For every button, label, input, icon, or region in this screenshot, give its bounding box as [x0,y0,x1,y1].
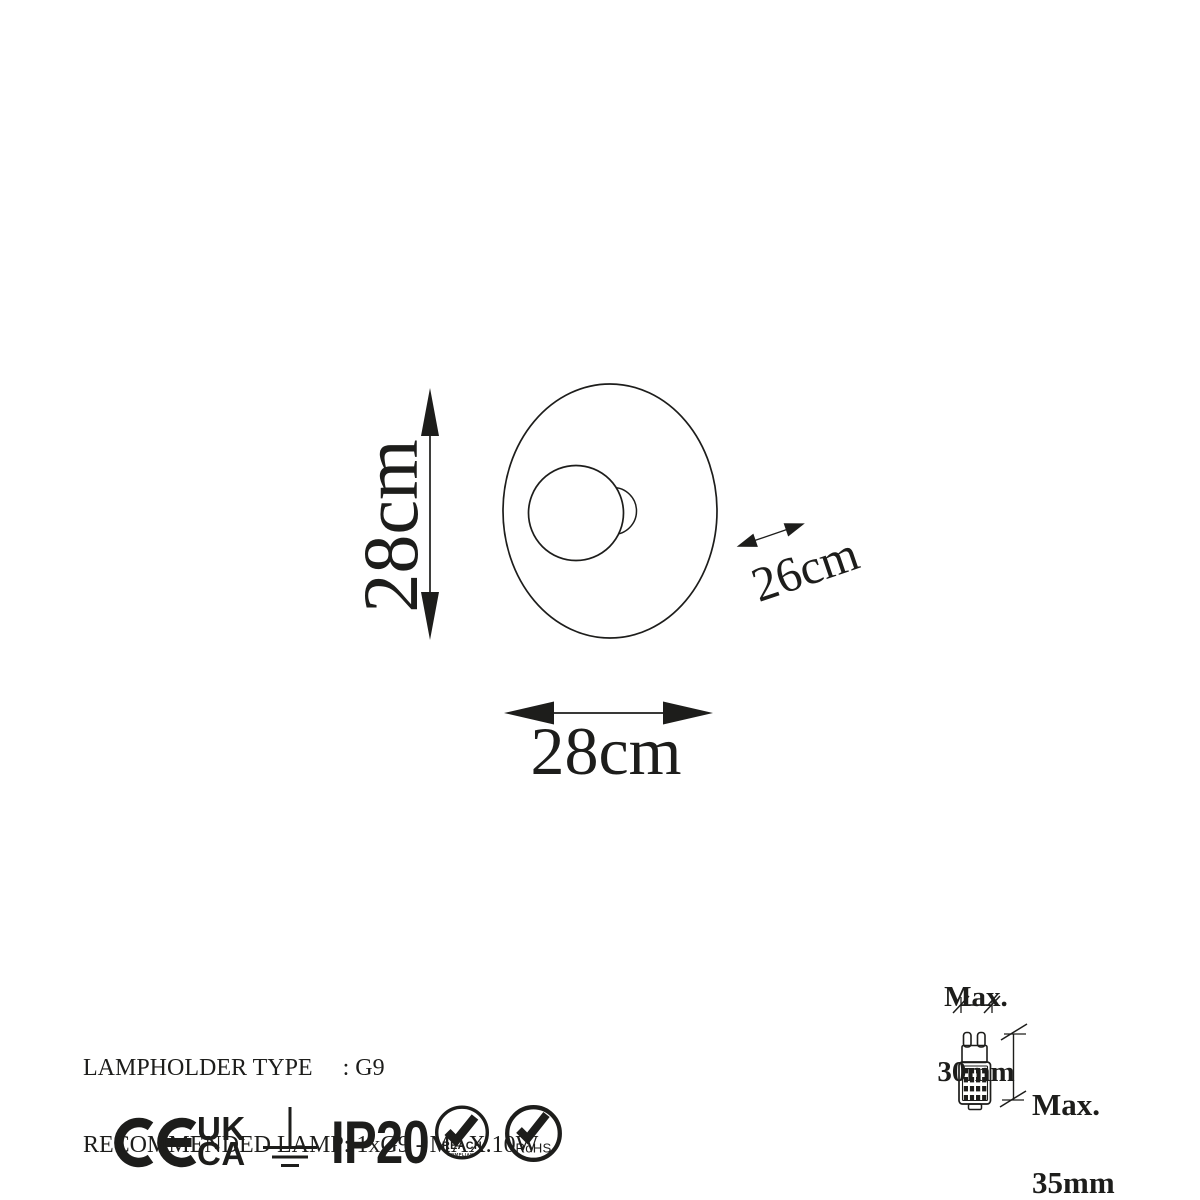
bulb-max-width-label: Max. 30mm [937,935,1014,1135]
ukca-mark-icon: UK CA [197,1117,246,1166]
spec-recommended-lamp: RECOMMENDED LAMP: 1xG9 - MAX.10W [83,1133,538,1159]
height-dimension-label: 28cm [352,439,430,612]
arrowhead-right [784,517,807,537]
lamp-front-view [503,384,717,638]
arrowhead-left [734,534,757,554]
spec-lampholder-type: LAMPHOLDER TYPE : G9 [83,1056,538,1082]
bulb-max-height-label: Max. 35mm [1032,1040,1115,1200]
spec-text-block: LAMPHOLDER TYPE : G9 RECOMMENDED LAMP: 1… [83,1005,538,1200]
arrowhead-up [421,388,439,436]
ip-rating-label: IP20 [331,1113,429,1173]
width-dimension-label: 28cm [530,717,681,785]
product-dimension-sheet: REACH COMPLIANT RoHS 28cm 28cm 26cm LAMP… [0,0,1200,1200]
glass-ball-circle [529,466,624,561]
